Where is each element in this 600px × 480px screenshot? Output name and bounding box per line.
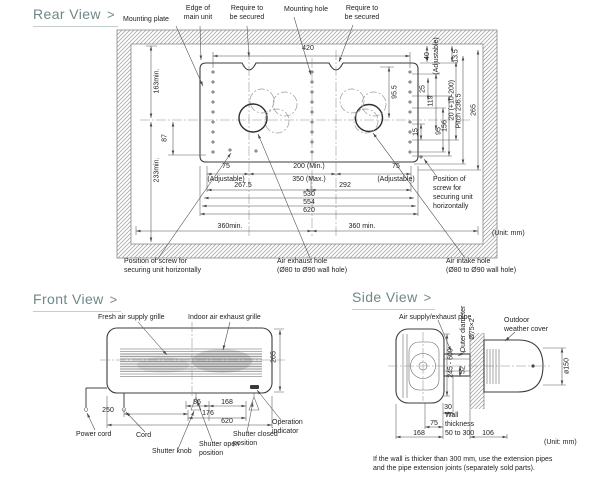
dim-420: 420 xyxy=(302,45,314,54)
dim-360min-left: 360min. xyxy=(218,223,243,232)
dim-150: ø150 xyxy=(564,358,573,374)
rear-view-heading: Rear View> xyxy=(33,6,118,27)
dim-52: 52 xyxy=(460,366,469,374)
unit-mm-label-rear: (Unit: mm) xyxy=(492,230,525,239)
dim-106: 106 xyxy=(482,430,494,439)
dim-265: 265 xyxy=(471,104,480,116)
chevron-icon: > xyxy=(110,292,118,307)
dim-292: 292 xyxy=(339,182,351,191)
front-view-title: Front View xyxy=(33,291,104,307)
dim-620-front: 620 xyxy=(221,418,233,427)
air-exhaust-hole-label: Air exhaust hole (Ø80 to Ø90 wall hole) xyxy=(277,258,347,276)
require-secured-left-label: Require to be secured xyxy=(230,5,265,23)
manual-diagram-page: Rear View> Front View> Side View> Mounti… xyxy=(0,0,600,480)
dim-40-adjustable: 40 (Adjustable) xyxy=(424,37,442,74)
unit-mm-label-side: (Unit: mm) xyxy=(544,439,577,448)
dim-156: 156 xyxy=(442,120,451,132)
dim-86: 86 xyxy=(193,399,201,408)
dim-200-min: 200 (Min.) xyxy=(293,163,325,172)
mounting-hole-label: Mounting hole xyxy=(284,6,328,15)
dim-350-max: 350 (Max.) xyxy=(292,176,325,185)
dim-163min: 163min. xyxy=(154,69,163,94)
shutter-knob-label: Shutter knob xyxy=(152,448,192,457)
dim-360min-right: 360 min. xyxy=(349,223,376,232)
dim-75-side: 75 xyxy=(430,420,438,429)
indoor-air-exhaust-grille-label: Indoor air exhaust grille xyxy=(188,314,261,323)
cord-label: Cord xyxy=(136,432,151,441)
edge-of-main-unit-label: Edge of main unit xyxy=(184,5,212,23)
dim-pitch-236-5: Pitch 236.5 xyxy=(456,93,465,128)
screw-position-bottom-label: Position of screw for securing unit hori… xyxy=(124,258,201,276)
dim-13-5: 13.5 xyxy=(453,49,462,63)
side-view-title: Side View xyxy=(352,289,418,305)
mounting-plate-label: Mounting plate xyxy=(123,16,169,25)
chevron-icon: > xyxy=(424,290,432,305)
wall-thickness-label: Wall thickness 50 to 300 xyxy=(445,412,474,439)
dim-87: 87 xyxy=(162,134,171,142)
dim-15: 15 xyxy=(413,128,422,136)
dim-250: 250 xyxy=(102,407,114,416)
require-secured-right-label: Require to be secured xyxy=(345,5,380,23)
outer-diameter-label: Outer diameter Ø75×2 xyxy=(460,306,478,353)
dim-267-5: 267.5 xyxy=(234,182,252,191)
dim-245-600: 245 - 600 xyxy=(448,348,457,378)
dim-25: 25 xyxy=(420,85,429,93)
dim-168-front: 168 xyxy=(221,399,233,408)
dim-176: 176 xyxy=(202,410,214,419)
operation-indicator-label: Operation indicator xyxy=(272,419,303,437)
dim-119: 119 xyxy=(428,95,437,106)
dim-233min: 233min. xyxy=(154,158,163,183)
dim-620: 620 xyxy=(303,207,315,216)
fresh-air-supply-grille-label: Fresh air supply grille xyxy=(98,314,165,323)
dim-75-right: 75 xyxy=(392,163,400,172)
diagram-line-art xyxy=(0,0,600,480)
wall-thickness-note: If the wall is thicker than 300 mm, use … xyxy=(373,456,552,474)
air-intake-hole-label: Air intake hole (Ø80 to Ø90 wall hole) xyxy=(446,258,516,276)
chevron-icon: > xyxy=(107,7,115,22)
dim-75-left: 75 xyxy=(222,163,230,172)
screw-position-right-label: Position of screw for securing unit hori… xyxy=(433,176,473,212)
front-view-heading: Front View> xyxy=(33,291,121,312)
dim-95-5: 95.5 xyxy=(392,85,401,99)
dim-265-front: 265 xyxy=(271,351,280,363)
power-cord-label: Power cord xyxy=(76,431,111,440)
side-view-heading: Side View> xyxy=(352,289,435,310)
rear-view-title: Rear View xyxy=(33,6,101,22)
outdoor-weather-cover-label: Outdoor weather cover xyxy=(504,317,548,335)
dim-168-side: 168 xyxy=(413,430,425,439)
dim-75-right-adjustable: (Adjustable) xyxy=(377,176,414,185)
